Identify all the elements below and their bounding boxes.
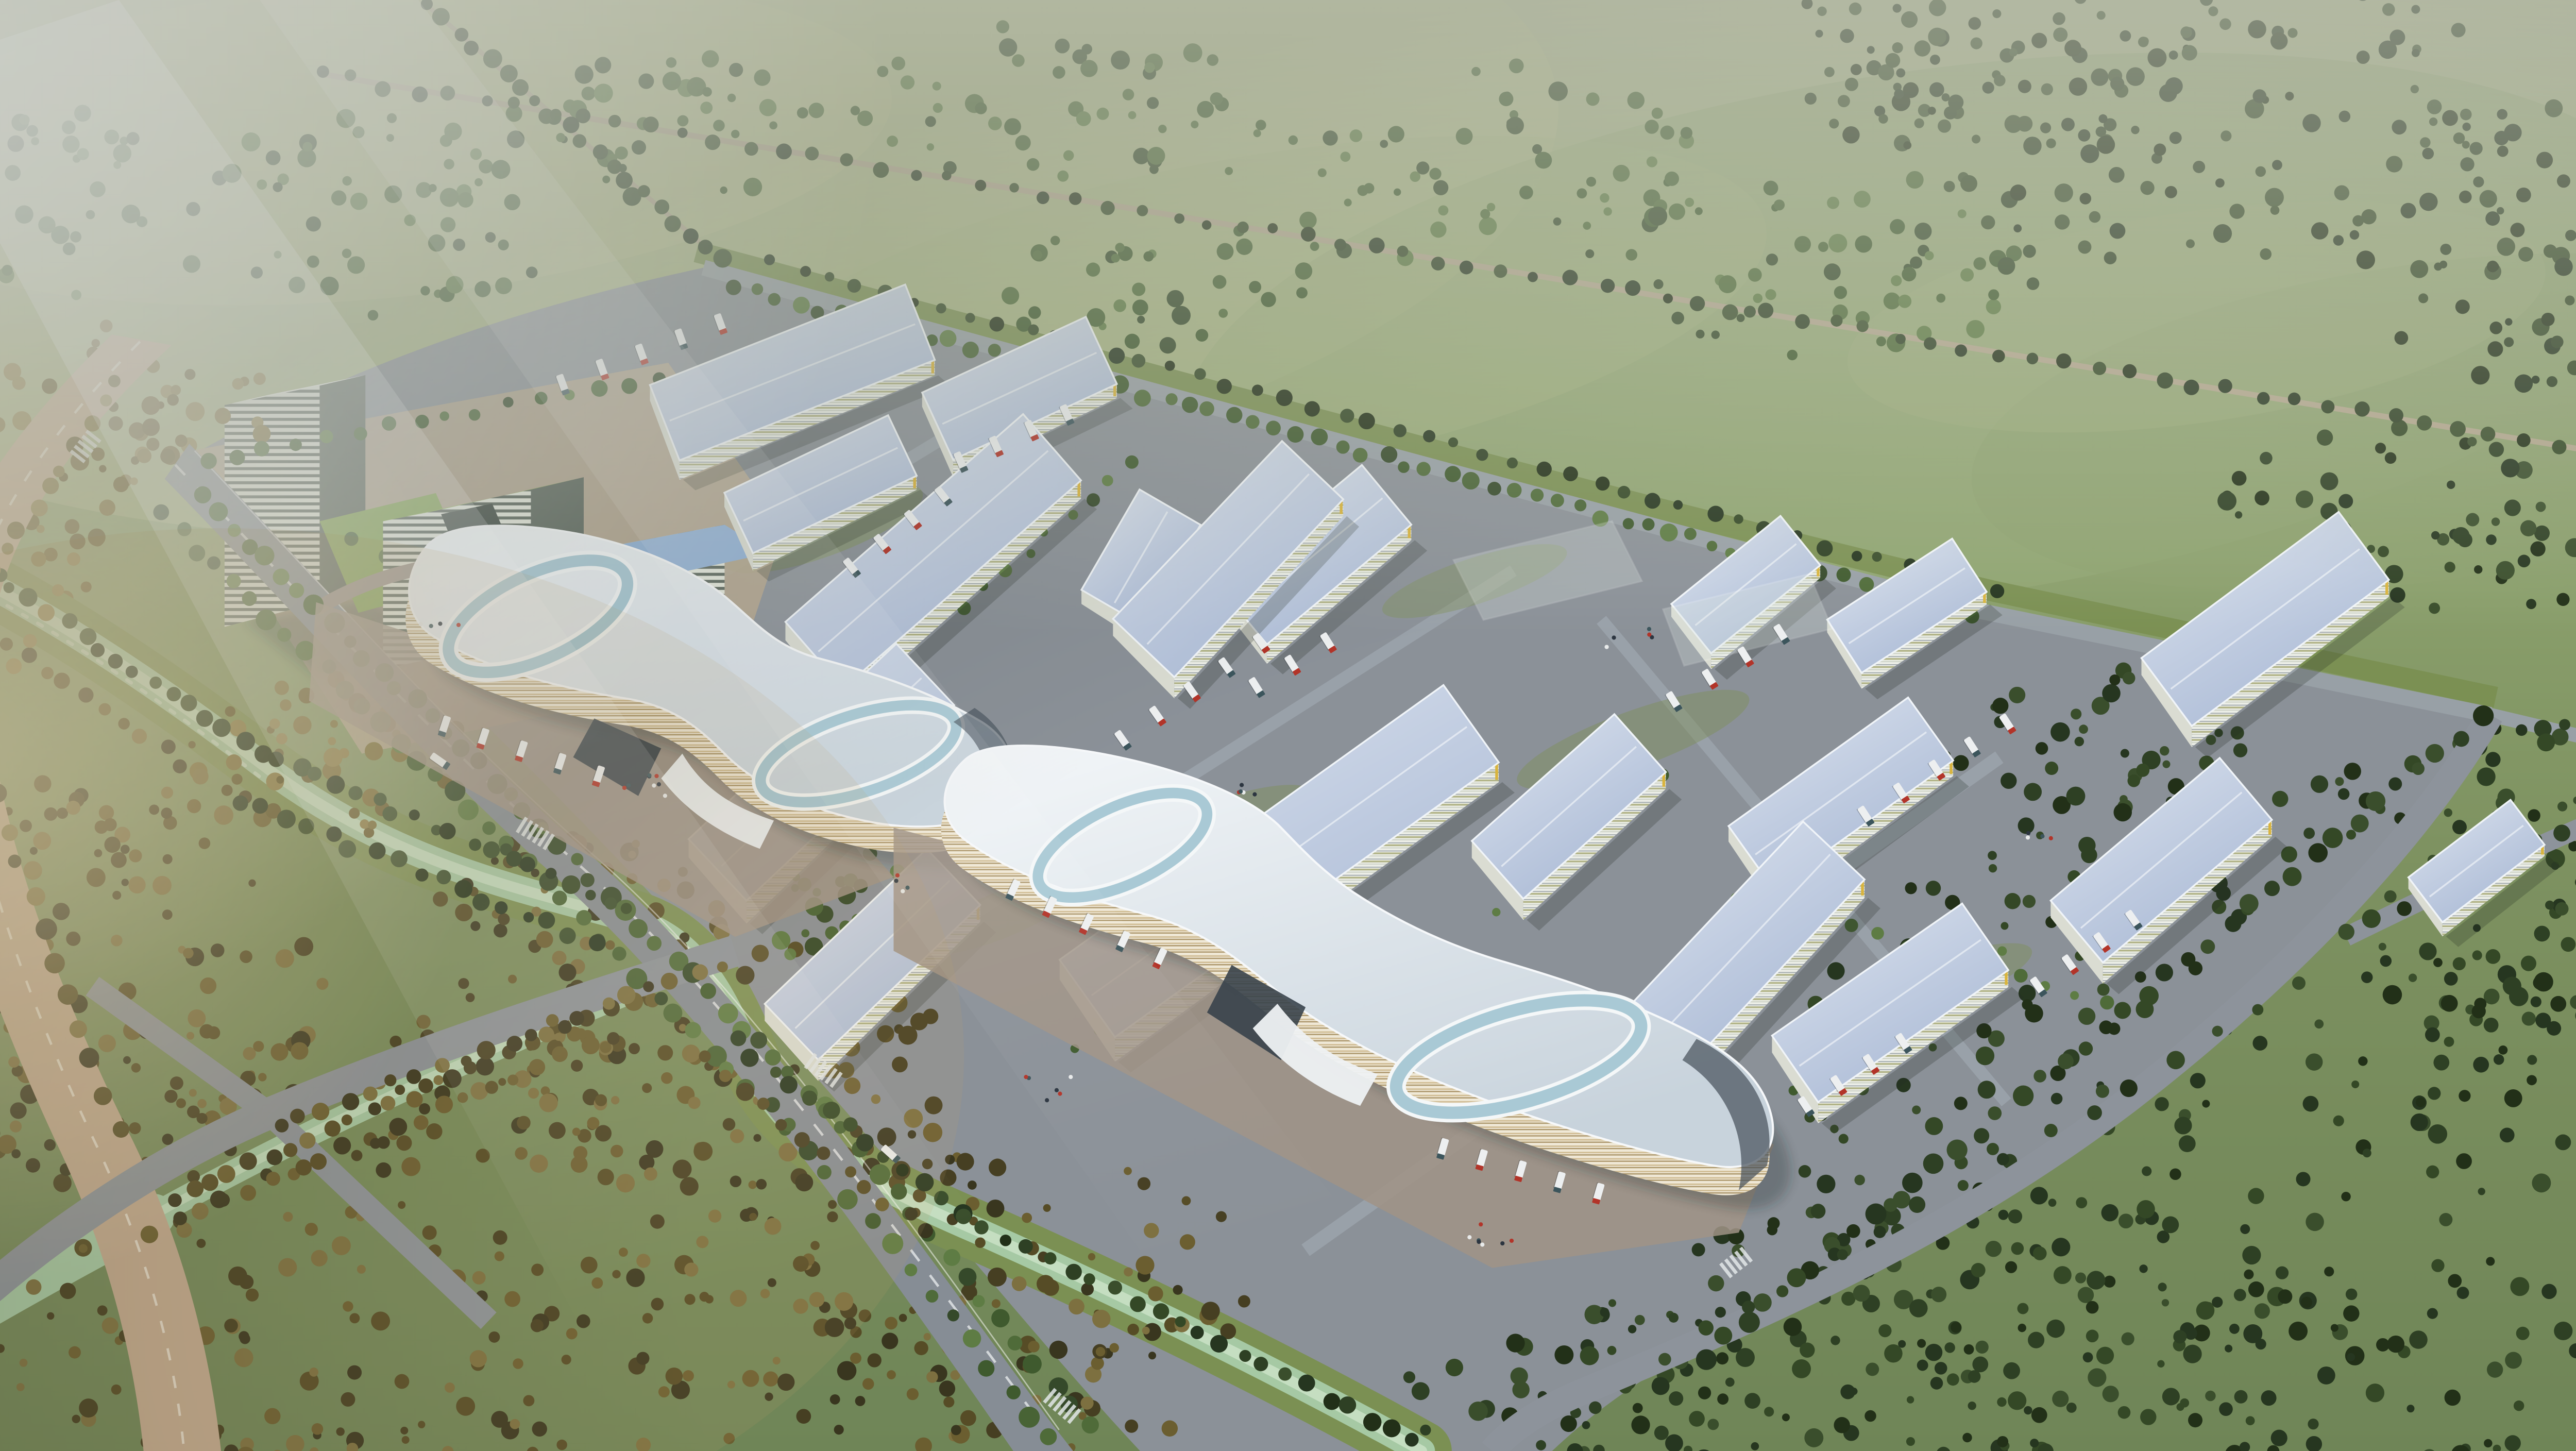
lighting-overlay [0, 0, 2576, 1451]
aerial-logistics-park-rendering [0, 0, 2576, 1451]
vignette [0, 0, 2576, 1451]
